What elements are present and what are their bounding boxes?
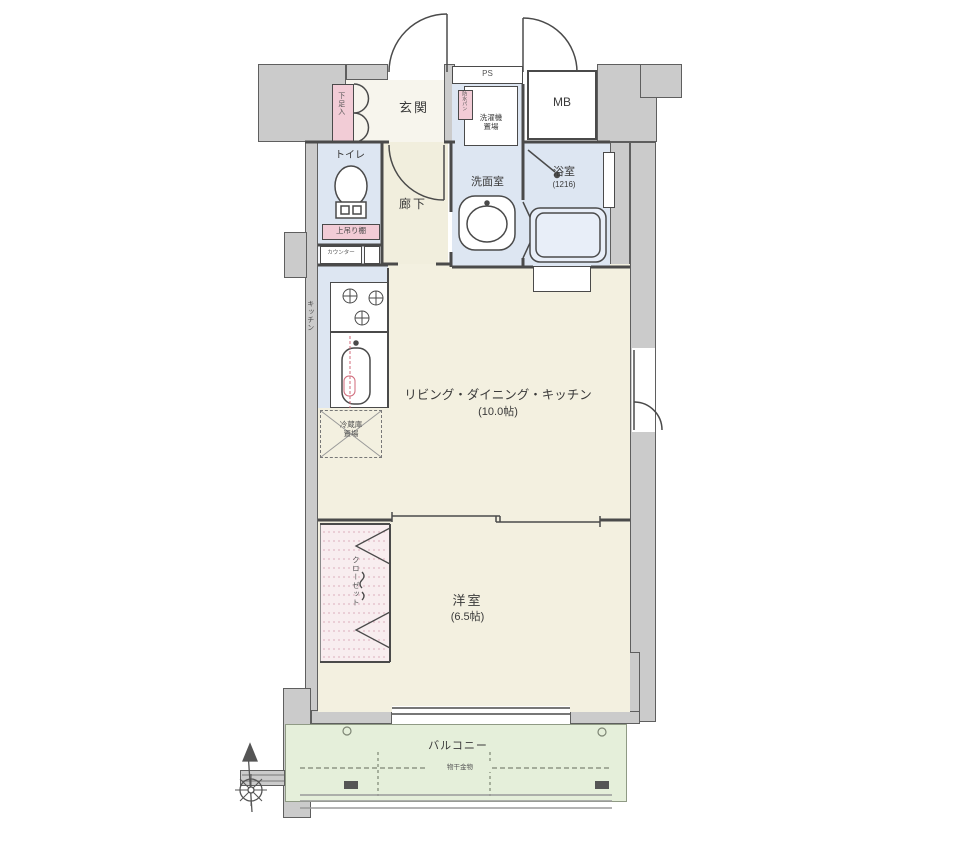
room-balcony — [285, 724, 627, 802]
kitchen-label: キッチン — [305, 300, 314, 376]
entrance-door-arc — [389, 14, 447, 72]
genkan-label: 玄関 — [384, 100, 444, 116]
hallway-label: 廊下 — [386, 197, 440, 212]
bath-label-name: 浴室 — [528, 166, 600, 180]
room-bath — [523, 142, 610, 267]
right-door-recess — [632, 348, 655, 432]
floorplan: 玄関 下足入 MB PS 洗面室 防水パン 洗濯機 置場 浴室 (1216) ト… — [0, 0, 960, 853]
washer-label-line2: 置場 — [466, 122, 516, 131]
ldk-label-size: (10.0帖) — [378, 406, 618, 420]
wall-right — [630, 142, 656, 722]
bedroom-window — [392, 706, 570, 719]
bedroom-label: 洋室 (6.5帖) — [400, 593, 535, 625]
wall-bottom-left — [311, 710, 392, 724]
washer-label: 洗濯機 置場 — [466, 113, 516, 132]
mb-label: MB — [534, 95, 590, 110]
fridge-label: 冷蔵庫 置場 — [322, 420, 380, 439]
wall-top-entrance — [346, 64, 388, 80]
laundry-hardware-label: 物干金物 — [428, 764, 492, 772]
drain-pipe — [240, 770, 285, 786]
bath-label-size: (1216) — [528, 180, 600, 190]
bath-label: 浴室 (1216) — [528, 166, 600, 190]
washroom-entry-box — [533, 266, 591, 292]
balcony-label: バルコニー — [388, 740, 528, 754]
bedroom-label-name: 洋室 — [400, 593, 535, 609]
senmen-label: 洗面室 — [452, 176, 523, 190]
bath-window — [603, 152, 615, 208]
second-door-arc — [523, 18, 577, 72]
washer-label-line1: 洗濯機 — [466, 113, 516, 122]
wall-bottom-right — [570, 710, 640, 724]
fridge-label-line1: 冷蔵庫 — [322, 420, 380, 429]
stove-unit — [330, 282, 388, 332]
bedroom-label-size: (6.5帖) — [400, 611, 535, 625]
ps-label: PS — [452, 69, 523, 79]
fridge-label-line2: 置場 — [322, 429, 380, 438]
wall-left — [305, 142, 318, 722]
ldk-label: リビング・ダイニング・キッチン (10.0帖) — [378, 388, 618, 419]
small-box — [364, 246, 380, 264]
closet-label: クローゼット — [351, 556, 360, 652]
counter-label: カウンター — [320, 250, 362, 257]
ldk-label-name: リビング・ダイニング・キッチン — [378, 388, 618, 404]
shoe-cabinet-label: 下足入 — [336, 92, 345, 136]
wall-top-right-ext — [640, 64, 682, 98]
wall-left-step — [284, 232, 307, 278]
toilet-shelf-label: 上吊り棚 — [322, 226, 380, 235]
toilet-label: トイレ — [324, 150, 376, 163]
